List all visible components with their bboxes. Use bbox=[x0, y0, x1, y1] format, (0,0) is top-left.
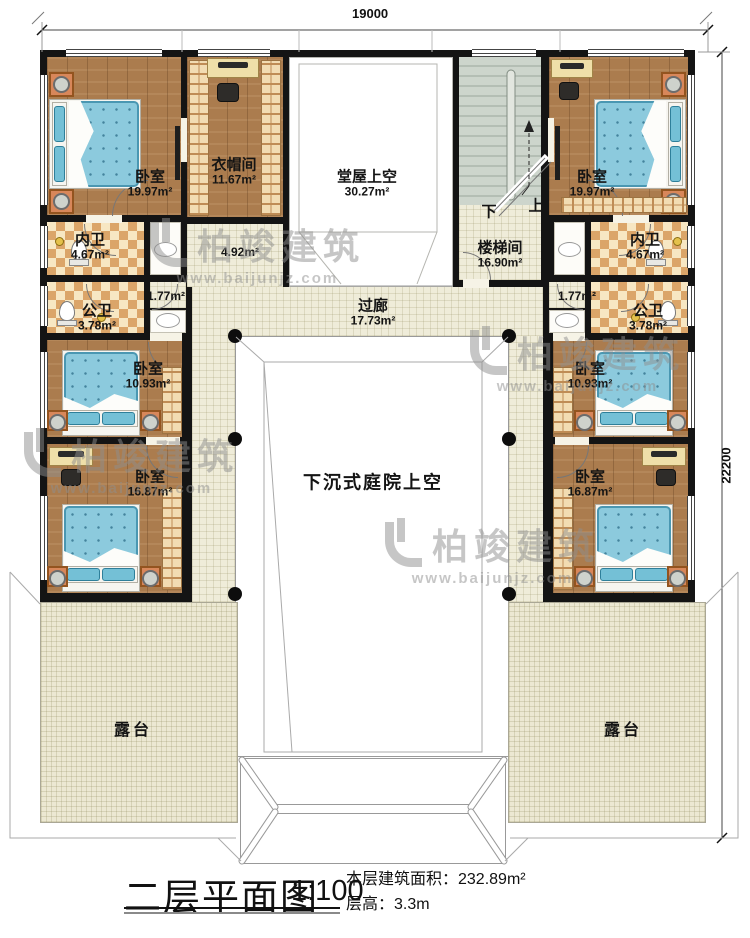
tv-wall-unit bbox=[175, 126, 180, 180]
building-area-text: 本层建筑面积：232.89m² bbox=[346, 868, 526, 893]
room-label-stairwell: 楼梯间 16.90m² bbox=[477, 239, 522, 270]
column bbox=[502, 329, 516, 343]
window-right-5 bbox=[687, 496, 695, 580]
room-label-courtyard-void: 下沉式庭院上空 bbox=[303, 473, 443, 494]
column bbox=[228, 587, 242, 601]
window-left-1 bbox=[40, 75, 48, 205]
canopy-ridge bbox=[273, 804, 473, 814]
column bbox=[228, 432, 242, 446]
room-label-bedroom-br: 卧室 16.87m² bbox=[568, 468, 613, 499]
chair bbox=[559, 82, 579, 100]
nightstand bbox=[574, 410, 595, 431]
title-underline bbox=[124, 907, 340, 909]
pillow bbox=[600, 568, 633, 581]
column bbox=[502, 587, 516, 601]
pillow bbox=[600, 412, 633, 425]
column bbox=[228, 329, 242, 343]
nightstand bbox=[140, 566, 161, 587]
sink-basin bbox=[558, 242, 581, 257]
door-gap-stairwell bbox=[463, 279, 489, 288]
pillow bbox=[670, 146, 681, 182]
nightstand bbox=[47, 566, 68, 587]
pillow bbox=[54, 146, 65, 182]
nightstand bbox=[667, 566, 688, 587]
pillow bbox=[67, 412, 100, 425]
window-top-1 bbox=[66, 49, 162, 57]
window-left-3 bbox=[40, 286, 48, 326]
room-label-inner-bath-left: 内卫 4.67m² bbox=[71, 231, 109, 262]
floor-plan-canvas: 卧室 19.97m² 衣帽间 11.67m² 堂屋上空 30.27m² 楼梯间 … bbox=[0, 0, 750, 938]
room-label-vestibule-left: 1.77m² bbox=[147, 290, 185, 304]
dimension-top-width: 19000 bbox=[352, 6, 388, 21]
tv-wall-unit bbox=[555, 126, 560, 180]
column bbox=[502, 432, 516, 446]
window-top-4 bbox=[588, 49, 684, 57]
title-info: 本层建筑面积：232.89m² 层高：3.3m bbox=[346, 868, 526, 918]
sink-basin bbox=[154, 242, 177, 257]
nightstand bbox=[49, 72, 74, 97]
room-label-vestibule-right: 1.77m² bbox=[558, 290, 596, 304]
window-top-3 bbox=[472, 49, 536, 57]
window-top-2 bbox=[198, 49, 270, 57]
pillow bbox=[102, 412, 135, 425]
nightstand bbox=[667, 410, 688, 431]
room-label-public-bath-left: 公卫 3.78m² bbox=[78, 302, 116, 333]
room-label-bedroom-bl: 卧室 16.87m² bbox=[128, 468, 173, 499]
door-gap-inner-bath-right bbox=[613, 215, 649, 223]
floor-terrace-left bbox=[40, 602, 238, 823]
title-underline-2 bbox=[124, 912, 340, 914]
toilet-tank bbox=[57, 320, 77, 326]
room-label-inner-bath-right: 内卫 4.67m² bbox=[626, 231, 664, 262]
chair bbox=[217, 83, 239, 102]
dresser-desk bbox=[642, 447, 686, 466]
wardrobe-rack bbox=[189, 60, 209, 216]
floor-corridor-left bbox=[192, 336, 235, 602]
towel-hook bbox=[673, 237, 682, 246]
window-right-4 bbox=[687, 352, 695, 428]
pillow bbox=[635, 412, 668, 425]
door-gap-cloak-left bbox=[181, 118, 187, 162]
door-gap-bedroom-mr bbox=[553, 333, 585, 341]
window-right-3 bbox=[687, 286, 695, 326]
room-label-cloakroom: 衣帽间 11.67m² bbox=[211, 156, 256, 187]
door-gap-inner-bath-left bbox=[86, 215, 122, 223]
dresser-desk bbox=[551, 59, 593, 78]
floor-height-text: 层高：3.3m bbox=[346, 893, 526, 918]
window-right-1 bbox=[687, 75, 695, 205]
floor-corridor-right bbox=[509, 336, 543, 602]
chair bbox=[61, 469, 81, 486]
floor-courtyard-void bbox=[235, 336, 509, 757]
dresser-desk bbox=[207, 58, 259, 78]
room-label-bedroom-ml: 卧室 10.93m² bbox=[126, 360, 171, 391]
towel-hook bbox=[55, 237, 64, 246]
sink-basin bbox=[156, 313, 180, 328]
room-label-hall-void: 堂屋上空 30.27m² bbox=[337, 168, 397, 199]
room-label-public-bath-right: 公卫 3.78m² bbox=[629, 302, 667, 333]
stair-flight bbox=[459, 57, 541, 205]
room-label-terrace-right: 露台 bbox=[604, 722, 642, 740]
room-label-corridor: 过廊 17.73m² bbox=[351, 297, 396, 328]
room-label-bedroom-tr: 卧室 19.97m² bbox=[570, 168, 615, 199]
nightstand bbox=[661, 72, 686, 97]
door-gap-bedroom-ml bbox=[150, 333, 182, 341]
door-gap-bedroom-br bbox=[555, 437, 589, 445]
pillow bbox=[67, 568, 100, 581]
stair-down-label: 下 bbox=[481, 203, 496, 220]
nightstand bbox=[49, 189, 74, 214]
stair-up-label: 上 bbox=[528, 197, 543, 214]
wardrobe-rack bbox=[261, 60, 281, 216]
nightstand bbox=[140, 410, 161, 431]
dimension-right-height: 22200 bbox=[719, 447, 734, 483]
dresser-desk bbox=[49, 447, 93, 466]
door-gap-cloak-right bbox=[548, 118, 554, 162]
room-label-bedroom-mr: 卧室 10.93m² bbox=[568, 360, 613, 391]
pillow bbox=[102, 568, 135, 581]
floor-terrace-right bbox=[508, 602, 706, 823]
window-left-2 bbox=[40, 226, 48, 268]
nightstand bbox=[47, 410, 68, 431]
toilet bbox=[59, 301, 75, 321]
room-label-lobby-left: 4.92m² bbox=[221, 246, 259, 260]
sink-basin bbox=[555, 313, 579, 328]
window-right-2 bbox=[687, 226, 695, 268]
room-label-terrace-left: 露台 bbox=[114, 722, 152, 740]
pillow bbox=[670, 106, 681, 142]
wardrobe-rack bbox=[553, 488, 573, 590]
nightstand bbox=[574, 566, 595, 587]
wardrobe-rack bbox=[162, 488, 182, 590]
pillow bbox=[54, 106, 65, 142]
room-label-bedroom-tl: 卧室 19.97m² bbox=[128, 168, 173, 199]
chair bbox=[656, 469, 676, 486]
pillow bbox=[635, 568, 668, 581]
door-gap-bedroom-bl bbox=[146, 437, 180, 445]
